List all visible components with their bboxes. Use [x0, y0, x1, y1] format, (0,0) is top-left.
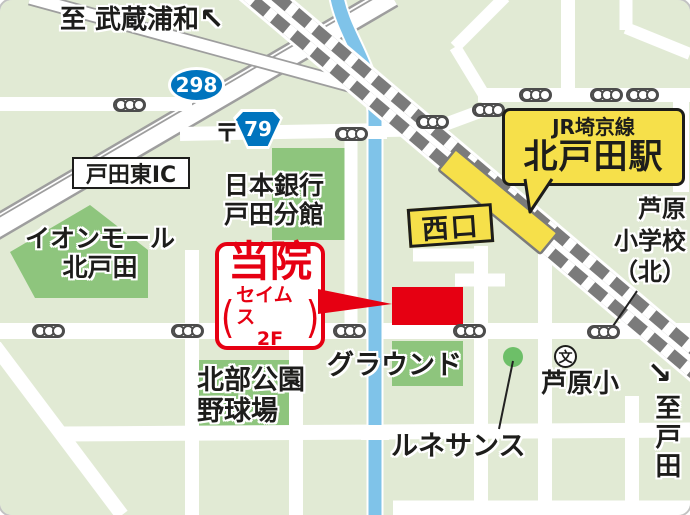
clinic-building: セイムス [236, 285, 304, 329]
clinic-subtitle: ( セイムス 2F ) [219, 285, 321, 351]
traffic-signal-icon [453, 324, 486, 338]
traffic-signal-icon [590, 88, 623, 102]
clinic-building [392, 287, 463, 325]
clinic-title: 当院 [228, 241, 312, 283]
route-map: 298 79 〒 文 至 武蔵浦和 ↖ ↘ 至戸田 戸田東IC 日本銀行 戸田分… [0, 0, 690, 515]
southeast-arrow-icon: ↘ [647, 357, 672, 392]
clinic-floor: 2F [257, 329, 283, 351]
paren-close: ) [306, 298, 320, 338]
interchange-label: 戸田東IC [72, 157, 190, 189]
northwest-arrow-icon: ↖ [199, 3, 224, 38]
station-name: 北戸田駅 [524, 138, 664, 177]
ashihara-north-line3: （北） [590, 257, 686, 289]
destination-toda: 至戸田 [650, 394, 680, 481]
ashihara-elementary-label: 芦原小 [541, 370, 619, 400]
station-line-name: JR埼京線 [552, 116, 635, 138]
ground-label: グラウンド [327, 350, 462, 381]
traffic-signal-icon [416, 115, 449, 129]
ashihara-north-label: 芦原 小学校 （北） [590, 194, 686, 289]
clinic-callout: 当院 ( セイムス 2F ) [215, 242, 325, 350]
traffic-signal-icon [113, 98, 146, 112]
bank-label-line2: 戸田分館 [224, 201, 324, 230]
traffic-signal-icon [472, 103, 505, 117]
ballpark-label-line1: 北部公園 [197, 365, 305, 396]
ashihara-north-line1: 芦原 [590, 194, 686, 226]
post-office-icon: 〒 [215, 120, 239, 148]
renaissance-label: ルネサンス [391, 431, 525, 462]
station-callout: JR埼京線 北戸田駅 [502, 108, 685, 186]
bank-label: 日本銀行 戸田分館 [224, 172, 324, 230]
school-symbol-icon: 文 [554, 345, 577, 368]
route-298-badge: 298 [168, 67, 225, 103]
mall-label-line2: 北戸田 [20, 254, 180, 283]
destination-musashi-urawa: 至 武蔵浦和 [60, 6, 199, 36]
traffic-signal-icon [32, 324, 65, 338]
mall-label-line1: イオンモール [20, 225, 180, 254]
traffic-signal-icon [626, 88, 659, 102]
ashihara-north-line2: 小学校 [590, 226, 686, 258]
west-exit-badge: 西口 [407, 203, 495, 248]
mall-label: イオンモール 北戸田 [20, 225, 180, 283]
route-298-number: 298 [176, 73, 218, 97]
ballpark-label-line2: 野球場 [197, 396, 305, 427]
traffic-signal-icon [335, 127, 368, 141]
traffic-signal-icon [519, 88, 552, 102]
bank-label-line1: 日本銀行 [224, 172, 324, 201]
traffic-signal-icon [333, 324, 366, 338]
traffic-signal-icon [587, 325, 620, 339]
route-79-number: 79 [244, 117, 272, 141]
ballpark-label: 北部公園 野球場 [197, 365, 305, 427]
paren-open: ( [221, 298, 235, 338]
school-symbol-char: 文 [559, 347, 573, 367]
traffic-signal-icon [171, 324, 204, 338]
